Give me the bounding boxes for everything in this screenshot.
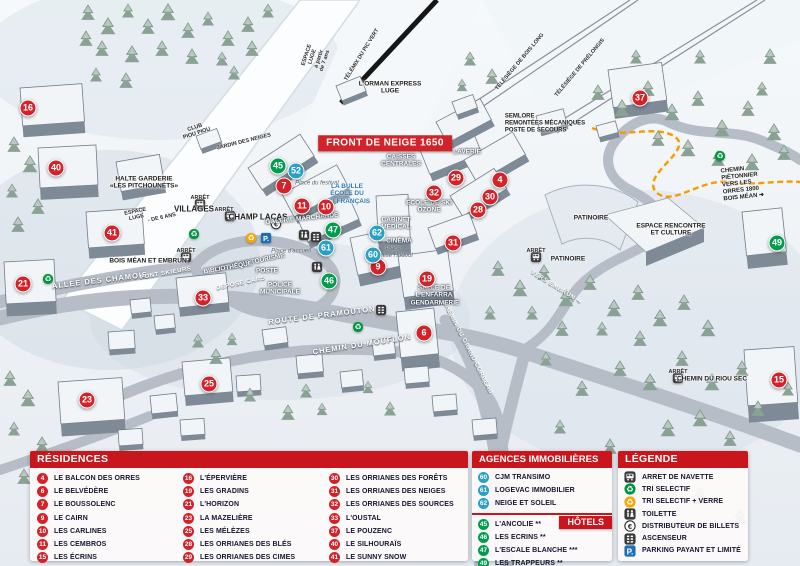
svg-text:♻: ♻ — [354, 323, 361, 332]
item-number-badge: 46 — [478, 532, 489, 543]
map-marker-31[interactable]: 31 — [445, 235, 462, 252]
list-item: 41LE SUNNY SNOW — [329, 551, 468, 564]
legende-item-label: DISTRIBUTEUR DE BILLETS — [642, 523, 739, 530]
agences-list: 60CJM TRANSIMO61LOGEVAC IMMOBILIER62NEIG… — [472, 468, 612, 512]
legende-item: ♻TRI SELECTIF + VERRE — [624, 496, 744, 508]
legende-item: ASCENSEUR — [624, 532, 744, 544]
svg-text:♻: ♻ — [44, 275, 51, 284]
item-label: LES ORRIANES DES SOURCES — [346, 501, 454, 508]
svg-text:♻: ♻ — [626, 497, 634, 507]
legende-title: LÉGENDE — [625, 453, 678, 465]
item-number-badge: 10 — [37, 526, 48, 537]
item-number-badge: 45 — [478, 519, 489, 530]
toilet-icon — [312, 262, 323, 273]
list-item: 25LES MÉLÈZES — [183, 525, 322, 538]
list-item: 33L'OUSTAL — [329, 512, 468, 525]
list-item: 61LOGEVAC IMMOBILIER — [478, 484, 608, 497]
item-number-badge: 25 — [183, 526, 194, 537]
item-number-badge: 9 — [37, 513, 48, 524]
item-number-badge: 28 — [183, 539, 194, 550]
euro-icon: € — [271, 219, 282, 230]
map-marker-16[interactable]: 16 — [20, 100, 37, 117]
item-label: L'ANCOLIE ** — [495, 521, 541, 528]
list-item: 46LES ECRINS ** — [478, 531, 608, 544]
list-item: 37LE POUZENC — [329, 525, 468, 538]
legende-item: ARRET DE NAVETTE — [624, 471, 744, 483]
item-number-badge: 16 — [183, 473, 194, 484]
svg-text:€: € — [274, 222, 278, 229]
legende-header: LÉGENDE — [618, 451, 748, 468]
svg-text:♻: ♻ — [626, 484, 634, 494]
list-item: 7LE BOUSSOLENC — [37, 498, 176, 511]
item-label: LES CEMBROS — [54, 541, 106, 548]
map-marker-61[interactable]: 61 — [318, 240, 335, 257]
legende-item: €DISTRIBUTEUR DE BILLETS — [624, 520, 744, 532]
recycle-green-icon: ♻ — [624, 483, 636, 495]
svg-text:€: € — [628, 522, 633, 531]
list-item: 31LES ORRIANES DES NEIGES — [329, 485, 468, 498]
item-number-badge: 11 — [37, 539, 48, 550]
item-number-badge: 47 — [478, 545, 489, 556]
item-label: LES CARLINES — [54, 528, 107, 535]
residences-column-1: 4LE BALCON DES ORRES6LE BELVÉDÈRE7LE BOU… — [30, 468, 176, 566]
hotels-title: HÔTELS — [559, 516, 612, 529]
bus-icon — [195, 199, 206, 210]
item-label: LA MAZELIÈRE — [200, 515, 253, 522]
list-item: 49LES TRAPPEURS ** — [478, 557, 608, 566]
svg-text:♻: ♻ — [190, 230, 197, 239]
item-label: LES ORRIANES DES BLÉS — [200, 541, 292, 548]
item-number-badge: 7 — [37, 499, 48, 510]
legende-item: ♻TRI SELECTIF — [624, 483, 744, 495]
hotels-section: HÔTELS 45L'ANCOLIE **46LES ECRINS **47L'… — [472, 513, 612, 566]
legende-item-label: TRI SELECTIF + VERRE — [642, 498, 723, 505]
bus-icon — [673, 373, 684, 384]
item-label: LE SILHOURAÏS — [346, 541, 401, 548]
item-number-badge: 62 — [478, 498, 489, 509]
legende-item: TOILETTE — [624, 508, 744, 520]
map-marker-40[interactable]: 40 — [48, 160, 65, 177]
item-label: L'ÉPERVIÈRE — [200, 475, 247, 482]
map-marker-6[interactable]: 6 — [416, 325, 433, 342]
toilet-icon — [299, 230, 310, 241]
map-marker-49[interactable]: 49 — [769, 235, 786, 252]
item-number-badge: 30 — [329, 473, 340, 484]
list-item: 19LES GRADINS — [183, 485, 322, 498]
map-marker-23[interactable]: 23 — [79, 392, 96, 409]
list-item: 28LES ORRIANES DES BLÉS — [183, 538, 322, 551]
item-label: CJM TRANSIMO — [495, 474, 550, 481]
item-number-badge: 32 — [329, 499, 340, 510]
residences-title: RÉSIDENCES — [37, 453, 108, 465]
item-label: L'OUSTAL — [346, 515, 381, 522]
map-marker-28[interactable]: 28 — [470, 202, 487, 219]
parking-icon: P. — [624, 545, 636, 557]
item-label: LES GRADINS — [200, 488, 249, 495]
euro-icon: € — [624, 520, 636, 532]
item-label: L'ESCALE BLANCHE *** — [495, 547, 578, 554]
item-number-badge: 40 — [329, 539, 340, 550]
resort-map: ♻♻♻♻♻P.€ FRONT DE NEIGE 1650L'ORMAN EXPR… — [0, 0, 800, 566]
item-number-badge: 15 — [37, 552, 48, 563]
map-marker-60[interactable]: 60 — [365, 247, 382, 264]
map-marker-46[interactable]: 46 — [321, 273, 338, 290]
list-item: 6LE BELVÉDÈRE — [37, 485, 176, 498]
map-marker-25[interactable]: 25 — [201, 376, 218, 393]
list-item: 15LES ÉCRINS — [37, 551, 176, 564]
map-marker-41[interactable]: 41 — [104, 225, 121, 242]
elevator-icon — [624, 533, 636, 545]
recycle-green-icon: ♻ — [715, 151, 726, 162]
agences-panel: AGENCES IMMOBILIÈRES 60CJM TRANSIMO61LOG… — [472, 451, 612, 561]
toilet-icon — [624, 508, 636, 520]
parking-icon: P. — [261, 233, 272, 244]
item-number-badge: 19 — [183, 486, 194, 497]
map-marker-4[interactable]: 4 — [492, 172, 509, 189]
list-item: 16L'ÉPERVIÈRE — [183, 472, 322, 485]
legende-item-label: ASCENSEUR — [642, 535, 687, 542]
list-item: 40LE SILHOURAÏS — [329, 538, 468, 551]
list-item: 30LES ORRIANES DES FORÊTS — [329, 472, 468, 485]
item-number-badge: 21 — [183, 499, 194, 510]
map-marker-30[interactable]: 30 — [482, 189, 499, 206]
recycle-green-icon: ♻ — [43, 274, 54, 285]
item-number-badge: 41 — [329, 552, 340, 563]
residences-column-3: 30LES ORRIANES DES FORÊTS31LES ORRIANES … — [322, 468, 468, 566]
map-marker-15[interactable]: 15 — [771, 372, 788, 389]
list-item: 60CJM TRANSIMO — [478, 471, 608, 484]
residences-header: RÉSIDENCES — [30, 451, 468, 468]
item-number-badge: 6 — [37, 486, 48, 497]
map-marker-10[interactable]: 10 — [318, 199, 335, 216]
list-item: 23LA MAZELIÈRE — [183, 512, 322, 525]
item-label: LES MÉLÈZES — [200, 528, 250, 535]
item-label: LE BELVÉDÈRE — [54, 488, 108, 495]
item-label: LES TRAPPEURS ** — [495, 560, 563, 566]
list-item: 10LES CARLINES — [37, 525, 176, 538]
bus-icon — [624, 471, 636, 483]
svg-text:♻: ♻ — [716, 152, 723, 161]
item-label: LE BALCON DES ORRES — [54, 475, 140, 482]
legende-list: ARRET DE NAVETTE♻TRI SELECTIF♻TRI SELECT… — [618, 468, 748, 558]
recycle-green-icon: ♻ — [353, 322, 364, 333]
legende-item: P.PARKING PAYANT ET LIMITÉ — [624, 545, 744, 557]
item-label: LES ORRIANES DES FORÊTS — [346, 475, 447, 482]
item-label: NEIGE ET SOLEIL — [495, 500, 556, 507]
legende-panel: LÉGENDE ARRET DE NAVETTE♻TRI SELECTIF♻TR… — [618, 451, 748, 561]
item-number-badge: 23 — [183, 513, 194, 524]
list-item: 62NEIGE ET SOLEIL — [478, 497, 608, 510]
svg-text:P.: P. — [627, 547, 634, 556]
recycle-green-icon: ♻ — [189, 229, 200, 240]
list-item: 29LES ORRIANES DES CIMES — [183, 551, 322, 564]
map-marker-7[interactable]: 7 — [276, 178, 293, 195]
recycle-yellow-icon: ♻ — [246, 233, 257, 244]
item-label: LOGEVAC IMMOBILIER — [495, 487, 575, 494]
item-label: LES ÉCRINS — [54, 554, 97, 561]
item-label: LES ORRIANES DES NEIGES — [346, 488, 446, 495]
item-label: LES ORRIANES DES CIMES — [200, 554, 295, 561]
bus-icon — [225, 211, 236, 222]
list-item: 21L'HORIZON — [183, 498, 322, 511]
map-marker-11[interactable]: 11 — [294, 198, 311, 215]
item-label: LES ECRINS ** — [495, 534, 546, 541]
legende-item-label: ARRET DE NAVETTE — [642, 474, 713, 481]
item-number-badge: 60 — [478, 472, 489, 483]
item-number-badge: 31 — [329, 486, 340, 497]
item-label: L'HORIZON — [200, 501, 239, 508]
item-number-badge: 61 — [478, 485, 489, 496]
map-marker-47[interactable]: 47 — [325, 222, 342, 239]
item-number-badge: 37 — [329, 526, 340, 537]
list-item: 9LE CAIRN — [37, 512, 176, 525]
item-number-badge: 29 — [183, 552, 194, 563]
legende-item-label: TOILETTE — [642, 511, 677, 518]
residences-columns: 4LE BALCON DES ORRES6LE BELVÉDÈRE7LE BOU… — [30, 468, 468, 566]
list-item: 11LES CEMBROS — [37, 538, 176, 551]
map-marker-19[interactable]: 19 — [419, 271, 436, 288]
item-label: LE BOUSSOLENC — [54, 501, 116, 508]
legende-item-label: TRI SELECTIF — [642, 486, 690, 493]
agences-title: AGENCES IMMOBILIÈRES — [479, 454, 598, 465]
agences-header: AGENCES IMMOBILIÈRES — [472, 451, 612, 468]
svg-text:P.: P. — [263, 234, 269, 243]
legende-item-label: PARKING PAYANT ET LIMITÉ — [642, 547, 741, 554]
bus-icon — [181, 252, 192, 263]
bus-icon — [531, 252, 542, 263]
residences-panel: RÉSIDENCES 4LE BALCON DES ORRES6LE BELVÉ… — [30, 451, 468, 561]
residences-column-2: 16L'ÉPERVIÈRE19LES GRADINS21L'HORIZON23L… — [176, 468, 322, 566]
recycle-yellow-icon: ♻ — [624, 496, 636, 508]
item-label: LE SUNNY SNOW — [346, 554, 406, 561]
elevator-icon — [376, 305, 387, 316]
svg-text:♻: ♻ — [247, 234, 254, 243]
map-marker-52[interactable]: 52 — [288, 163, 305, 180]
list-item: 32LES ORRIANES DES SOURCES — [329, 498, 468, 511]
map-marker-62[interactable]: 62 — [369, 225, 386, 242]
map-marker-45[interactable]: 45 — [270, 158, 287, 175]
item-label: LE CAIRN — [54, 515, 88, 522]
item-label: LE POUZENC — [346, 528, 392, 535]
item-number-badge: 4 — [37, 473, 48, 484]
list-item: 47L'ESCALE BLANCHE *** — [478, 544, 608, 557]
map-marker-32[interactable]: 32 — [426, 185, 443, 202]
item-number-badge: 33 — [329, 513, 340, 524]
list-item: 4LE BALCON DES ORRES — [37, 472, 176, 485]
map-marker-33[interactable]: 33 — [195, 290, 212, 307]
item-number-badge: 49 — [478, 558, 489, 566]
map-marker-21[interactable]: 21 — [15, 276, 32, 293]
map-marker-29[interactable]: 29 — [448, 170, 465, 187]
map-marker-37[interactable]: 37 — [632, 90, 649, 107]
